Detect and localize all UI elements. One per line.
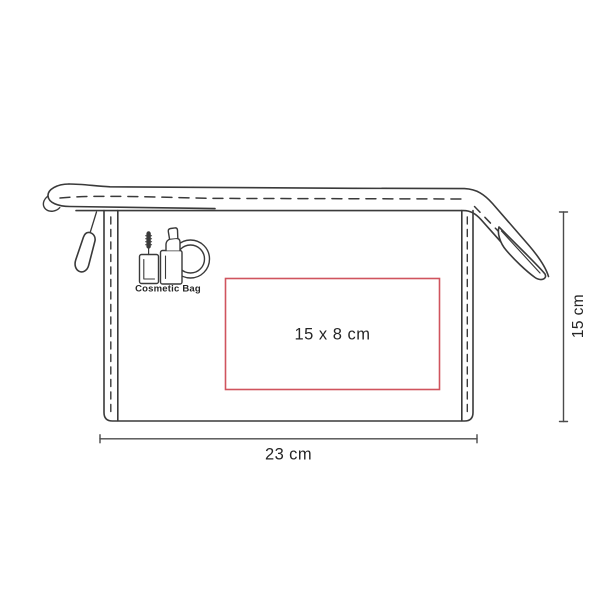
zipper-band-fold-tip <box>43 196 59 211</box>
lipstick-body-icon <box>161 251 183 285</box>
width-dimension-label: 23 cm <box>265 446 312 464</box>
bag-artwork <box>43 184 548 421</box>
cosmetic-bag-drawing: Cosmetic Bag 15 x 8 cm 23 cm 15 cm <box>0 0 600 600</box>
lipstick-tip-icon <box>168 228 178 239</box>
zipper-stitch-dashed-slope <box>475 207 501 234</box>
height-dimension-label: 15 cm <box>570 294 587 338</box>
labels: Cosmetic Bag 15 x 8 cm 23 cm 15 cm <box>135 284 587 464</box>
zipper-pull-left-cord <box>90 212 97 233</box>
zipper-stitch-dashed <box>60 196 463 199</box>
lipstick-cap-icon <box>166 238 180 250</box>
zipper-pull-left <box>75 232 95 271</box>
cosmetics-icon <box>140 228 210 284</box>
print-area-label: 15 x 8 cm <box>294 326 370 344</box>
product-diagram: Cosmetic Bag 15 x 8 cm 23 cm 15 cm <box>0 0 600 600</box>
logo-label: Cosmetic Bag <box>135 284 201 295</box>
